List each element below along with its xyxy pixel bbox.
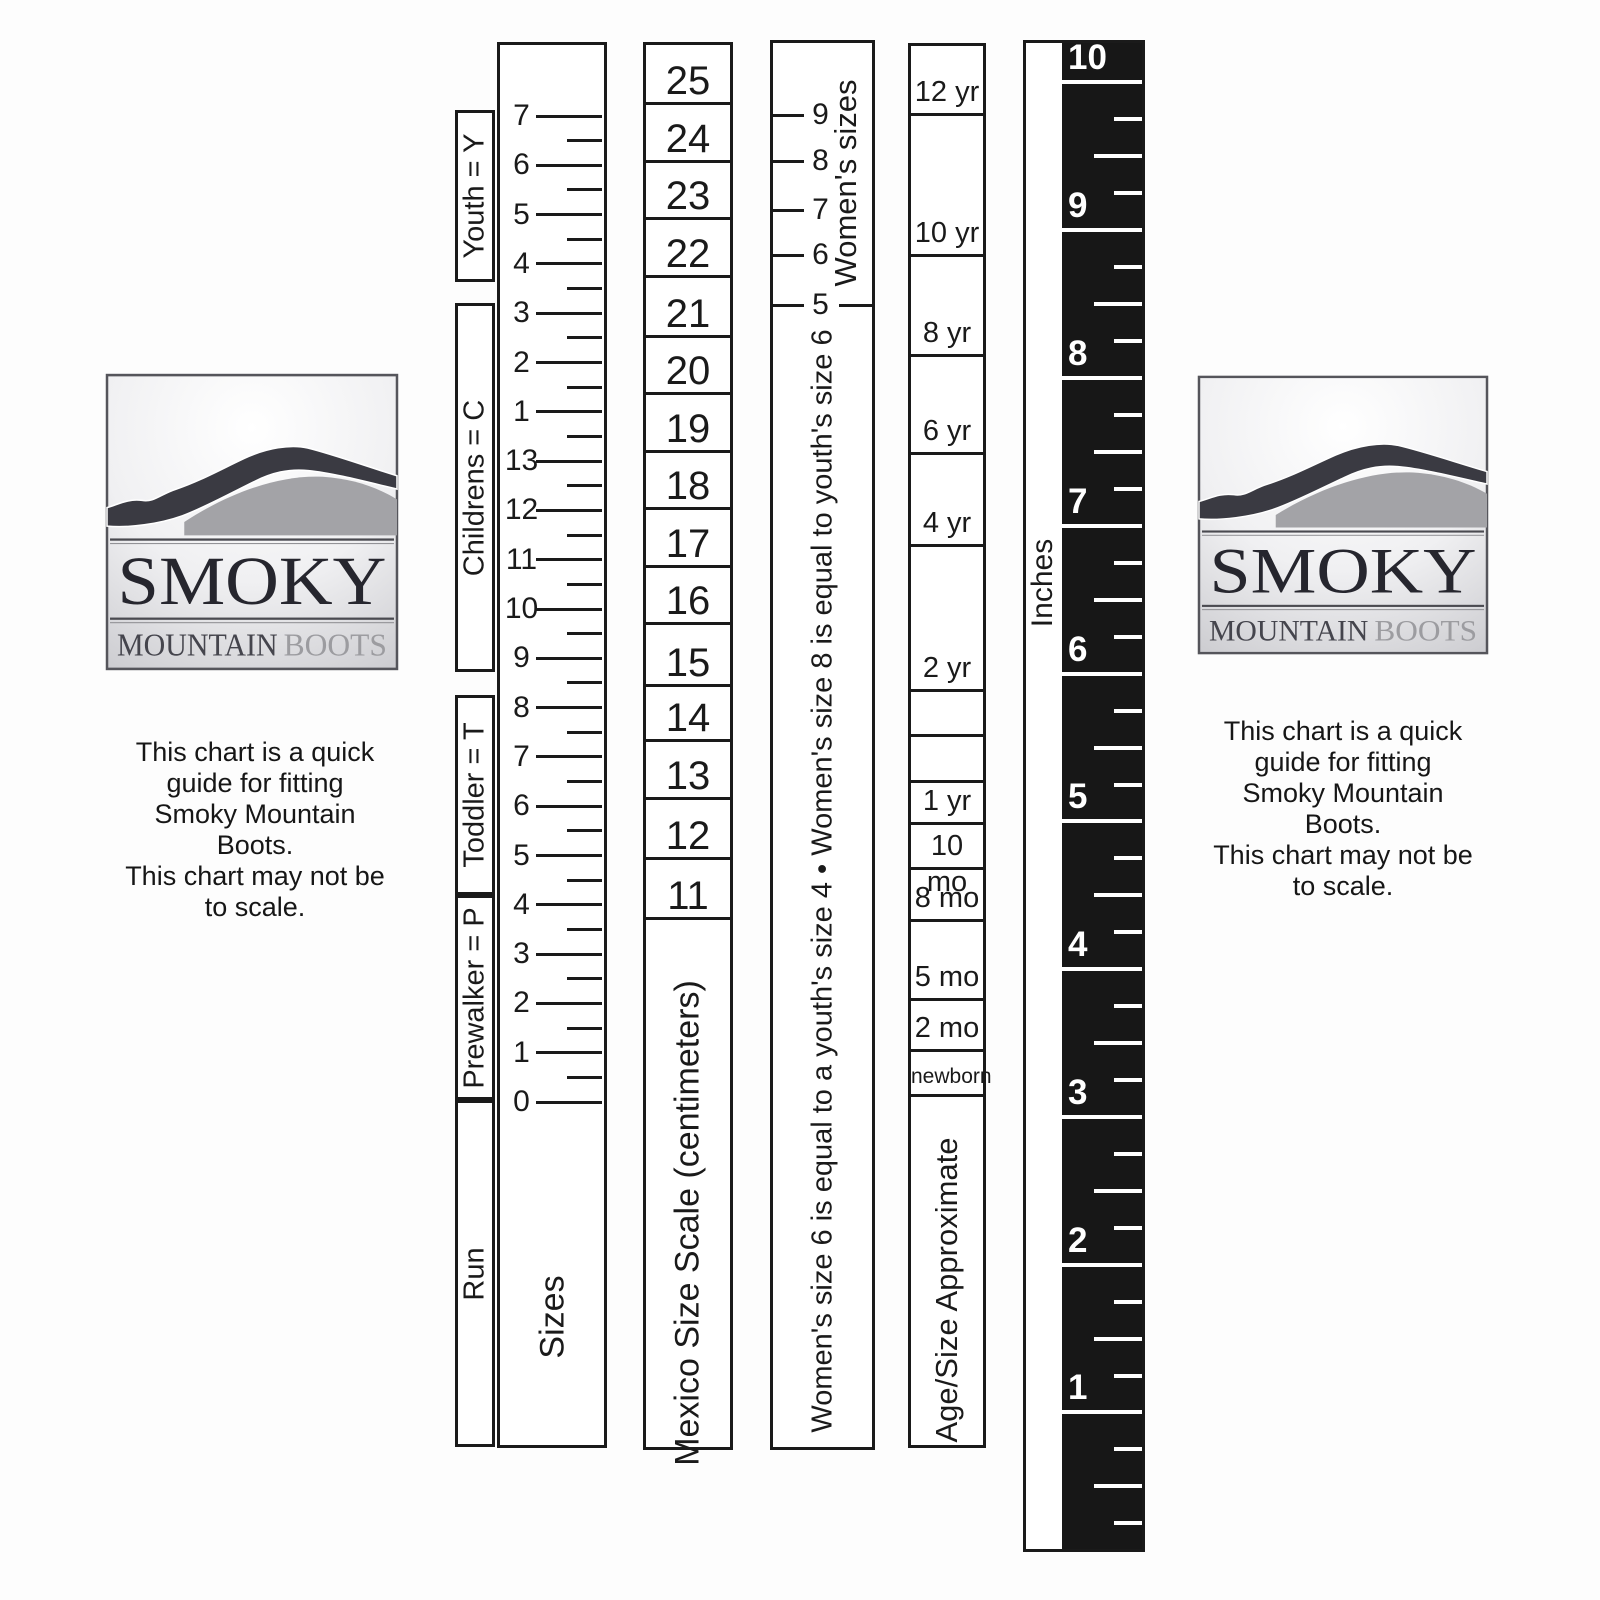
- logo-subtitle-boots: BOOTS: [1374, 614, 1477, 647]
- size-tick-label: 4: [503, 889, 540, 921]
- logo-subtitle-mountain: MOUNTAIN: [1209, 614, 1368, 647]
- size-tick-label: 13: [503, 445, 540, 477]
- womens-tick: [773, 160, 804, 163]
- mexico-cell-value: 12: [646, 816, 730, 856]
- note-line: Smoky Mountain: [1188, 778, 1498, 809]
- mexico-cell-value: 25: [646, 61, 730, 101]
- ruler-half-inch-tick: [1094, 598, 1142, 602]
- size-major-tick: [536, 509, 602, 512]
- age-cell-label: 10 yr: [911, 215, 983, 251]
- ruler-quarter-inch-tick: [1114, 1374, 1142, 1378]
- size-minor-tick: [567, 484, 602, 487]
- size-major-tick: [536, 262, 602, 265]
- note-line: guide for fitting: [1188, 747, 1498, 778]
- ruler-inch-line: [1062, 524, 1142, 528]
- mexico-cell-value: 23: [646, 176, 730, 216]
- size-major-tick: [536, 805, 602, 808]
- age-cell-label: 2 mo: [911, 1010, 983, 1046]
- age-cell-label: 4 yr: [911, 505, 983, 541]
- size-major-tick: [536, 903, 602, 906]
- age-cell-line: [911, 452, 983, 455]
- ruler-inch-line: [1062, 1115, 1142, 1119]
- age-size-column: Age/Size Approximate 12 yr10 yr8 yr6 yr4…: [908, 43, 986, 1448]
- age-cell-label: 8 mo: [911, 880, 983, 916]
- ruler-quarter-inch-tick: [1114, 1300, 1142, 1304]
- womens-divider-label: 5: [804, 289, 837, 321]
- size-tick-label: 3: [503, 938, 540, 970]
- ruler-quarter-inch-tick: [1114, 265, 1142, 269]
- ruler-quarter-inch-tick: [1114, 930, 1142, 934]
- ruler-inch-number: 4: [1068, 925, 1087, 965]
- size-minor-tick: [567, 681, 602, 684]
- bracket-childrens-c: Childrens = C: [455, 303, 495, 672]
- brand-logo-right: SMOKY MOUNTAIN BOOTS: [1196, 374, 1490, 656]
- mexico-cell-value: 17: [646, 524, 730, 564]
- mountain-logo-graphic: SMOKY MOUNTAIN BOOTS: [104, 372, 400, 672]
- ruler-inch-number: 5: [1068, 777, 1087, 817]
- age-cell-line: [911, 1049, 983, 1052]
- logo-subtitle-mountain: MOUNTAIN: [117, 627, 278, 662]
- size-major-tick: [536, 755, 602, 758]
- size-minor-tick: [567, 583, 602, 586]
- ruler-inch-number: 6: [1068, 630, 1087, 670]
- ruler-inch-number: 8: [1068, 334, 1087, 374]
- size-major-tick: [536, 1002, 602, 1005]
- ruler-quarter-inch-tick: [1114, 709, 1142, 713]
- age-cell-label: newborn: [911, 1063, 983, 1091]
- ruler-inch-line: [1062, 819, 1142, 823]
- size-minor-tick: [567, 386, 602, 389]
- age-cell-line: [911, 689, 983, 692]
- bracket-label: Toddler = T: [459, 722, 492, 867]
- size-tick-label: 3: [503, 297, 540, 329]
- size-tick-label: 5: [503, 840, 540, 872]
- womens-tick-label: 9: [804, 99, 837, 131]
- size-tick-label: 2: [503, 987, 540, 1019]
- size-tick-label: 2: [503, 347, 540, 379]
- size-tick-label: 7: [503, 100, 540, 132]
- womens-divider-line: [839, 304, 872, 307]
- age-cell-line: [911, 113, 983, 116]
- ruler-inch-number: 9: [1068, 186, 1087, 226]
- womens-tick-label: 8: [804, 145, 837, 177]
- note-line: to scale.: [1188, 871, 1498, 902]
- age-column-label: Age/Size Approximate: [929, 1137, 965, 1442]
- ruler-quarter-inch-tick: [1114, 856, 1142, 860]
- ruler-quarter-inch-tick: [1114, 561, 1142, 565]
- size-tick-label: 7: [503, 741, 540, 773]
- ruler-inch-number: 3: [1068, 1073, 1087, 1113]
- age-cell-line: [911, 544, 983, 547]
- ruler-quarter-inch-tick: [1114, 783, 1142, 787]
- mexico-cell-value: 21: [646, 294, 730, 334]
- mexico-column-label: Mexico Size Scale (centimeters): [669, 980, 708, 1466]
- ruler-half-inch-tick: [1094, 746, 1142, 750]
- womens-sizes-column: Women's sizes Women's size 6 is equal to…: [770, 40, 875, 1450]
- fitting-note-left: This chart is a quick guide for fitting …: [100, 737, 410, 923]
- ruler-inch-line: [1062, 1410, 1142, 1414]
- mexico-cell-value: 16: [646, 581, 730, 621]
- size-minor-tick: [567, 928, 602, 931]
- size-major-tick: [536, 953, 602, 956]
- age-cell-line: [911, 822, 983, 825]
- mexico-cell-value: 22: [646, 234, 730, 274]
- size-tick-label: 4: [503, 248, 540, 280]
- ruler-inch-line: [1062, 376, 1142, 380]
- bracket-prewalker-p: Prewalker = P: [455, 895, 495, 1100]
- size-major-tick: [536, 213, 602, 216]
- note-line: This chart is a quick: [100, 737, 410, 768]
- logo-title: SMOKY: [118, 542, 387, 619]
- size-major-tick: [536, 361, 602, 364]
- womens-divider-tick: [773, 304, 804, 307]
- size-tick-label: 6: [503, 790, 540, 822]
- size-minor-tick: [567, 287, 602, 290]
- ruler-half-inch-tick: [1094, 1189, 1142, 1193]
- ruler-quarter-inch-tick: [1114, 117, 1142, 121]
- ruler-quarter-inch-tick: [1114, 413, 1142, 417]
- mexico-cell-value: 15: [646, 643, 730, 683]
- fitting-note-right: This chart is a quick guide for fitting …: [1188, 716, 1498, 902]
- mexico-cell-value: 13: [646, 756, 730, 796]
- age-cell-label: 8 yr: [911, 315, 983, 351]
- size-tick-label: 10: [503, 593, 540, 625]
- note-line: Boots.: [100, 830, 410, 861]
- size-minor-tick: [567, 435, 602, 438]
- womens-tick: [773, 254, 804, 257]
- age-cell-label: 6 yr: [911, 413, 983, 449]
- size-major-tick: [536, 164, 602, 167]
- size-major-tick: [536, 706, 602, 709]
- age-cell-label: 1 yr: [911, 783, 983, 819]
- size-major-tick: [536, 460, 602, 463]
- ruler-half-inch-tick: [1094, 1484, 1142, 1488]
- ruler-inch-number: 7: [1068, 482, 1087, 522]
- age-cell-line: [911, 919, 983, 922]
- bracket-label: Prewalker = P: [459, 907, 492, 1088]
- size-major-tick: [536, 558, 602, 561]
- size-tick-label: 9: [503, 642, 540, 674]
- ruler-quarter-inch-tick: [1114, 1521, 1142, 1525]
- ruler-half-inch-tick: [1094, 302, 1142, 306]
- ruler-quarter-inch-tick: [1114, 1226, 1142, 1230]
- size-major-tick: [536, 608, 602, 611]
- size-tick-label: 11: [503, 544, 540, 576]
- size-minor-tick: [567, 879, 602, 882]
- logo-title: SMOKY: [1209, 535, 1476, 607]
- inches-label: Inches: [1026, 539, 1060, 627]
- age-cell-label: 10 mo: [911, 828, 983, 864]
- age-cell-label: 2 yr: [911, 650, 983, 686]
- size-minor-tick: [567, 731, 602, 734]
- ruler-inch-line: [1062, 967, 1142, 971]
- size-minor-tick: [567, 829, 602, 832]
- mexico-cell-value: 20: [646, 351, 730, 391]
- size-minor-tick: [567, 534, 602, 537]
- brand-logo-left: SMOKY MOUNTAIN BOOTS: [104, 372, 400, 672]
- note-line: guide for fitting: [100, 768, 410, 799]
- size-major-tick: [536, 854, 602, 857]
- ruler-quarter-inch-tick: [1114, 1152, 1142, 1156]
- note-line: Smoky Mountain: [100, 799, 410, 830]
- age-cell-line: [911, 734, 983, 737]
- mexico-size-column: Mexico Size Scale (centimeters) 25242322…: [643, 42, 733, 1450]
- size-tick-label: 12: [503, 494, 540, 526]
- size-tick-label: 1: [503, 1037, 540, 1069]
- size-minor-tick: [567, 139, 602, 142]
- size-major-tick: [536, 312, 602, 315]
- ruler-quarter-inch-tick: [1114, 339, 1142, 343]
- age-cell-line: [911, 1094, 983, 1097]
- size-minor-tick: [567, 1076, 602, 1079]
- note-line: This chart may not be: [100, 861, 410, 892]
- mexico-cell-value: 18: [646, 466, 730, 506]
- bracket-run: Run: [455, 1100, 495, 1447]
- mexico-cell-value: 14: [646, 698, 730, 738]
- ruler-quarter-inch-tick: [1114, 191, 1142, 195]
- size-minor-tick: [567, 780, 602, 783]
- age-cell-line: [911, 254, 983, 257]
- mountain-logo-graphic: SMOKY MOUNTAIN BOOTS: [1196, 374, 1490, 656]
- size-minor-tick: [567, 188, 602, 191]
- womens-size-note: Women's size 6 is equal to a youth's siz…: [807, 329, 840, 1432]
- mexico-cell-value: 19: [646, 409, 730, 449]
- ruler-inch-number: 2: [1068, 1221, 1087, 1261]
- bracket-label: Run: [459, 1247, 492, 1300]
- age-cell-line: [911, 354, 983, 357]
- size-minor-tick: [567, 336, 602, 339]
- womens-tick: [773, 114, 804, 117]
- size-major-tick: [536, 410, 602, 413]
- note-line: This chart may not be: [1188, 840, 1498, 871]
- ruler-quarter-inch-tick: [1114, 1447, 1142, 1451]
- bracket-label: Childrens = C: [459, 399, 492, 576]
- womens-tick-label: 6: [804, 239, 837, 271]
- age-cell-line: [911, 998, 983, 1001]
- ruler-inch-line: [1062, 228, 1142, 232]
- ruler-half-inch-tick: [1094, 450, 1142, 454]
- mexico-cell-value: 24: [646, 119, 730, 159]
- size-minor-tick: [567, 1027, 602, 1030]
- sizes-column: Sizes 7654321131211109876543210: [497, 42, 607, 1448]
- womens-tick: [773, 209, 804, 212]
- inches-ruler: Inches 10987654321: [1023, 40, 1145, 1552]
- sizes-column-label: Sizes: [534, 1275, 573, 1358]
- note-line: to scale.: [100, 892, 410, 923]
- size-major-tick: [536, 115, 602, 118]
- bracket-label: Youth = Y: [459, 134, 492, 259]
- sizing-chart-page: SMOKY MOUNTAIN BOOTS SMOKY MOUNTAIN BOOT…: [0, 0, 1600, 1600]
- age-cell-label: 12 yr: [911, 74, 983, 110]
- ruler-half-inch-tick: [1094, 1041, 1142, 1045]
- bracket-toddler-t: Toddler = T: [455, 695, 495, 895]
- note-line: Boots.: [1188, 809, 1498, 840]
- size-major-tick: [536, 657, 602, 660]
- ruler-half-inch-tick: [1094, 1337, 1142, 1341]
- note-line: This chart is a quick: [1188, 716, 1498, 747]
- size-minor-tick: [567, 238, 602, 241]
- ruler-half-inch-tick: [1094, 893, 1142, 897]
- ruler-half-inch-tick: [1094, 154, 1142, 158]
- ruler-quarter-inch-tick: [1114, 1078, 1142, 1082]
- size-major-tick: [536, 1051, 602, 1054]
- size-tick-label: 1: [503, 396, 540, 428]
- ruler-inch-line: [1062, 1263, 1142, 1267]
- size-tick-label: 6: [503, 149, 540, 181]
- ruler-quarter-inch-tick: [1114, 1004, 1142, 1008]
- womens-tick-label: 7: [804, 194, 837, 226]
- ruler-inch-number: 1: [1068, 1368, 1087, 1408]
- size-major-tick: [536, 1101, 602, 1104]
- ruler-inch-number: 10: [1068, 43, 1107, 78]
- size-tick-label: 0: [503, 1086, 540, 1118]
- size-tick-label: 8: [503, 692, 540, 724]
- ruler-quarter-inch-tick: [1114, 487, 1142, 491]
- size-minor-tick: [567, 977, 602, 980]
- ruler-inch-line: [1062, 80, 1142, 84]
- age-cell-label: 5 mo: [911, 959, 983, 995]
- ruler-scale: 10987654321: [1062, 43, 1142, 1549]
- ruler-quarter-inch-tick: [1114, 635, 1142, 639]
- size-tick-label: 5: [503, 199, 540, 231]
- mexico-cell-value: 11: [646, 876, 730, 916]
- bracket-youth-y: Youth = Y: [455, 110, 495, 282]
- size-minor-tick: [567, 632, 602, 635]
- logo-subtitle-boots: BOOTS: [284, 627, 387, 662]
- ruler-inch-line: [1062, 672, 1142, 676]
